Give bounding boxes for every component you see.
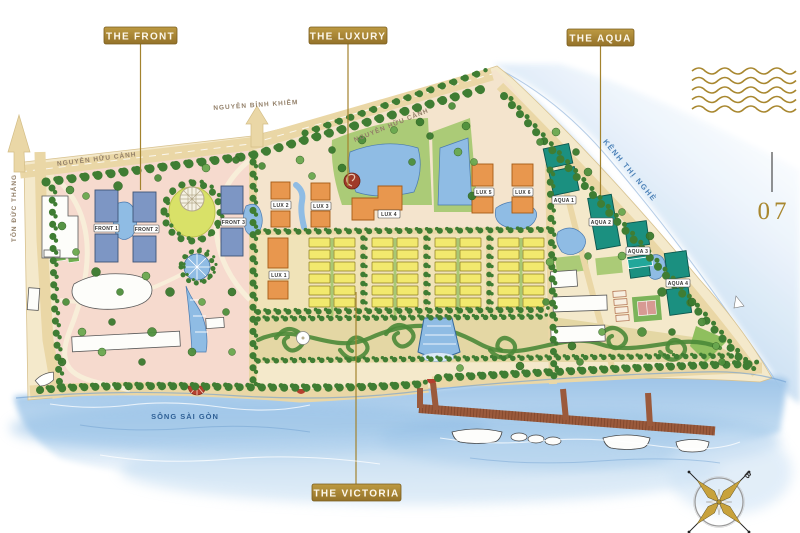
- building-label-front-1: FRONT 1: [94, 224, 119, 232]
- tree: [188, 348, 196, 356]
- tree: [471, 159, 478, 166]
- tree: [117, 289, 124, 296]
- victoria-townhouse: [435, 250, 456, 259]
- lux-1-clubhouse: [268, 281, 288, 299]
- victoria-townhouse: [397, 286, 418, 295]
- victoria-townhouse: [460, 238, 481, 247]
- building-label-aqua-2: AQUA 2: [589, 218, 613, 226]
- boat: [452, 429, 502, 444]
- building-label-lux-1: LUX 1: [269, 271, 289, 279]
- svg-text:THE AQUA: THE AQUA: [569, 34, 631, 45]
- tree: [83, 193, 90, 200]
- tree: [166, 288, 175, 297]
- lux-3-tower-a: [311, 183, 330, 200]
- tree: [646, 232, 654, 240]
- tree: [568, 342, 576, 350]
- svg-text:LUX 3: LUX 3: [313, 204, 329, 210]
- zone-badge-aqua: THE AQUA: [567, 29, 634, 46]
- needle-knob: [688, 471, 691, 474]
- victoria-townhouse: [309, 250, 330, 259]
- victoria-townhouse: [435, 298, 456, 307]
- lux-5-tower-a: [472, 164, 493, 186]
- tree: [92, 268, 101, 277]
- victoria-townhouse: [334, 250, 355, 259]
- front-1-tower-a: [95, 190, 118, 222]
- svg-text:LUX 2: LUX 2: [273, 203, 289, 209]
- tree: [199, 299, 206, 306]
- hedge-strip: [520, 238, 523, 316]
- lux-3-tower-b: [311, 211, 330, 227]
- svg-text:AQUA 4: AQUA 4: [668, 281, 689, 287]
- hedge-strip: [457, 238, 460, 316]
- victoria-townhouse: [397, 298, 418, 307]
- victoria-townhouse: [435, 274, 456, 283]
- svg-text:LUX 4: LUX 4: [381, 212, 397, 218]
- tree: [416, 118, 424, 126]
- tree: [713, 343, 720, 350]
- svg-text:AQUA 2: AQUA 2: [591, 220, 612, 226]
- lux-2-tower-b: [271, 211, 290, 227]
- building-label-lux-4: LUX 4: [378, 210, 400, 218]
- building-label-lux-3: LUX 3: [311, 202, 331, 210]
- tree: [309, 173, 316, 180]
- tree: [457, 365, 464, 372]
- tree: [66, 186, 74, 194]
- victoria-townhouse: [334, 274, 355, 283]
- lux-2-tower-a: [271, 182, 290, 199]
- zone-badge-front: THE FRONT: [104, 27, 177, 44]
- tree: [449, 103, 456, 110]
- victoria-townhouse: [460, 250, 481, 259]
- tree: [719, 359, 726, 366]
- wave-line: [692, 97, 796, 103]
- victoria-townhouse: [372, 274, 393, 283]
- tree: [58, 222, 66, 230]
- tree: [329, 147, 336, 154]
- tree: [223, 309, 230, 316]
- small-white-building: [27, 288, 40, 311]
- tree: [202, 164, 210, 172]
- tree: [577, 359, 584, 366]
- building-label-lux-5: LUX 5: [474, 188, 494, 196]
- tree: [139, 359, 146, 366]
- lux-6-tower-b: [512, 197, 533, 213]
- victoria-townhouse: [498, 274, 519, 283]
- victoria-townhouse: [334, 262, 355, 271]
- tree: [537, 139, 544, 146]
- svg-text:THE FRONT: THE FRONT: [106, 32, 175, 43]
- tree: [229, 349, 236, 356]
- building-label-front-3: FRONT 3: [221, 218, 246, 226]
- victoria-townhouse: [334, 238, 355, 247]
- building-label-lux-6: LUX 6: [513, 188, 533, 196]
- tree: [546, 258, 554, 266]
- tree: [658, 288, 667, 297]
- victoria-townhouse: [334, 298, 355, 307]
- boat: [511, 433, 527, 441]
- compass-hub: [717, 500, 721, 504]
- svg-text:LUX 6: LUX 6: [515, 190, 531, 196]
- hedge-strip: [331, 238, 334, 316]
- wave-line: [692, 68, 796, 74]
- svg-text:AQUA 1: AQUA 1: [554, 198, 575, 204]
- row-house: [615, 307, 628, 314]
- garden-fountain: [418, 318, 460, 357]
- building-label-lux-2: LUX 2: [271, 201, 291, 209]
- hedge-strip: [394, 238, 397, 316]
- building-label-aqua-1: AQUA 1: [552, 196, 576, 204]
- svg-text:FRONT 1: FRONT 1: [95, 226, 119, 232]
- dock-connector-1: [433, 383, 436, 410]
- victoria-townhouse: [460, 298, 481, 307]
- tree: [427, 133, 434, 140]
- building-label-aqua-3: AQUA 3: [626, 247, 650, 255]
- tree: [584, 168, 592, 176]
- row-house: [614, 299, 627, 306]
- page-number: 07: [758, 198, 791, 225]
- svg-text:LUX 1: LUX 1: [271, 273, 287, 279]
- garden-gazebo-center: [302, 337, 305, 340]
- tree: [516, 362, 524, 370]
- svg-text:THE LUXURY: THE LUXURY: [310, 32, 387, 43]
- wave-line: [692, 78, 796, 84]
- victoria-townhouse: [435, 238, 456, 247]
- victoria-townhouse: [372, 238, 393, 247]
- victoria-townhouse: [523, 262, 544, 271]
- svg-text:FRONT 2: FRONT 2: [135, 227, 159, 233]
- victoria-townhouse: [523, 298, 544, 307]
- tree-row: [258, 230, 545, 232]
- tree: [585, 253, 592, 260]
- tree: [552, 128, 560, 136]
- victoria-townhouse: [309, 298, 330, 307]
- tree: [98, 348, 106, 356]
- wave-line: [692, 106, 796, 112]
- lux-5-tower-b: [472, 197, 493, 213]
- victoria-townhouse: [309, 286, 330, 295]
- convention-hall: [72, 274, 152, 310]
- tree: [599, 329, 606, 336]
- gold-wave-lines: [692, 68, 796, 112]
- tree: [233, 157, 240, 164]
- victoria-townhouse: [334, 286, 355, 295]
- victoria-townhouse: [523, 250, 544, 259]
- tree: [573, 149, 580, 156]
- masterplan-page: FRONT 1 FRONT 2 FRONT 3 LUX 1 LUX 2 LUX …: [0, 0, 800, 533]
- front-2-tower-a: [133, 192, 156, 222]
- victoria-townhouse: [397, 238, 418, 247]
- tree: [619, 209, 626, 216]
- victoria-townhouse: [372, 298, 393, 307]
- tree: [338, 164, 346, 172]
- victoria-townhouse: [498, 262, 519, 271]
- street-label-ton-duc-thang: TÔN ĐỨC THẮNG: [9, 174, 18, 242]
- tree: [148, 328, 157, 337]
- zone-badge-victoria: THE VICTORIA: [312, 484, 401, 501]
- victoria-townhouse: [498, 286, 519, 295]
- tree: [688, 298, 696, 306]
- tree: [698, 318, 706, 326]
- aqua-white-building-2: [553, 295, 607, 312]
- svg-text:THE VICTORIA: THE VICTORIA: [314, 489, 400, 500]
- victoria-townhouse: [498, 238, 519, 247]
- tree: [296, 156, 304, 164]
- svg-text:LUX 5: LUX 5: [476, 190, 492, 196]
- victoria-townhouse: [523, 238, 544, 247]
- victoria-townhouse: [460, 262, 481, 271]
- site-map: FRONT 1 FRONT 2 FRONT 3 LUX 1 LUX 2 LUX …: [0, 0, 800, 533]
- lux-1-tower: [268, 238, 288, 268]
- svg-text:AQUA 3: AQUA 3: [628, 249, 649, 255]
- dock-connector-3: [648, 393, 650, 426]
- aqua-white-building-3: [551, 325, 606, 343]
- white-pavilion-central: [206, 317, 225, 328]
- svg-text:FRONT 3: FRONT 3: [222, 220, 246, 226]
- victoria-townhouse: [498, 250, 519, 259]
- victoria-townhouse: [397, 262, 418, 271]
- tree: [228, 288, 236, 296]
- tree: [63, 299, 70, 306]
- victoria-townhouse: [523, 286, 544, 295]
- aqua-tennis: [632, 295, 662, 322]
- tree: [142, 272, 150, 280]
- row-house: [616, 315, 629, 322]
- lux-6-tower-a: [512, 164, 533, 186]
- tree: [638, 328, 647, 337]
- victoria-townhouse: [435, 262, 456, 271]
- tree: [109, 319, 116, 326]
- tree: [462, 122, 470, 130]
- victoria-townhouse: [372, 262, 393, 271]
- tree: [155, 175, 162, 182]
- victoria-townhouse: [372, 250, 393, 259]
- tree: [114, 182, 123, 191]
- victoria-townhouse: [309, 238, 330, 247]
- dock-connector-2: [563, 389, 566, 420]
- tree: [454, 148, 462, 156]
- front-2-tower-b: [133, 236, 156, 262]
- tree: [543, 299, 550, 306]
- tree: [78, 328, 86, 336]
- victoria-townhouse: [523, 274, 544, 283]
- tree: [259, 163, 266, 170]
- tree: [73, 249, 80, 256]
- row-house: [613, 291, 626, 298]
- front-3-tower-b: [221, 228, 243, 256]
- building-label-aqua-4: AQUA 4: [666, 279, 690, 287]
- victoria-townhouse: [309, 262, 330, 271]
- river-label: SÔNG SÀI GÒN: [151, 412, 219, 421]
- building-label-front-2: FRONT 2: [134, 225, 159, 233]
- victoria-townhouse: [397, 274, 418, 283]
- boat: [676, 440, 709, 453]
- victoria-townhouse: [309, 274, 330, 283]
- victoria-townhouse: [460, 274, 481, 283]
- tree: [409, 159, 416, 166]
- triangle-pond: [438, 138, 472, 205]
- front-1-tower-b: [95, 234, 118, 262]
- victoria-townhouse: [372, 286, 393, 295]
- victoria-townhouse: [498, 298, 519, 307]
- tree: [58, 358, 66, 366]
- victoria-townhouse: [460, 286, 481, 295]
- tree: [669, 329, 676, 336]
- wave-line: [692, 87, 796, 93]
- zone-badge-luxury: THE LUXURY: [309, 27, 387, 44]
- tree-row: [258, 310, 545, 312]
- aqua-3-tower-a: [624, 221, 649, 248]
- front-3-tower-a: [221, 186, 243, 214]
- tree: [618, 252, 626, 260]
- victoria-townhouse: [435, 286, 456, 295]
- boat: [545, 437, 561, 445]
- victoria-townhouse: [397, 250, 418, 259]
